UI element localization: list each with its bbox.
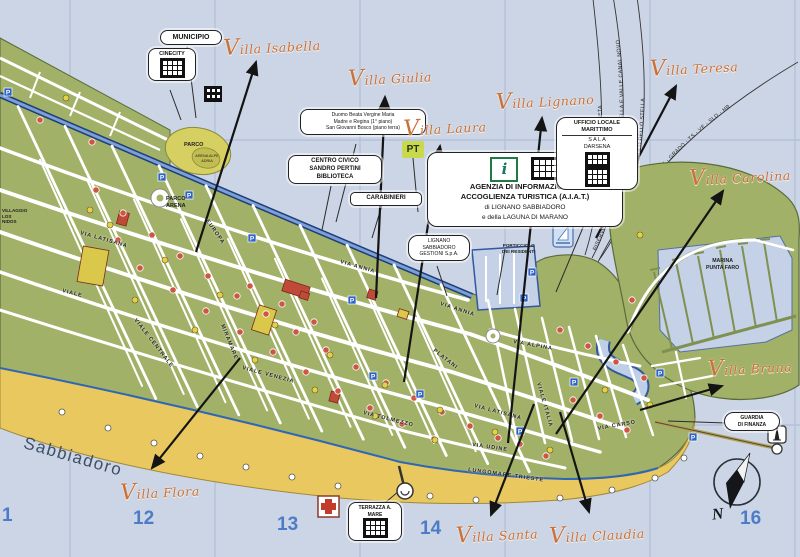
harbor-building-icon xyxy=(585,152,610,167)
poi-marker xyxy=(597,413,603,419)
poi-marker xyxy=(327,352,333,358)
terrazza-building-icon xyxy=(363,518,388,538)
poi-marker xyxy=(570,397,576,403)
poi-marker xyxy=(120,210,126,216)
villaggio-line: NIDOS xyxy=(2,219,17,224)
compass-north-label: N xyxy=(711,505,724,524)
gestioni-line: SABBIADORO xyxy=(422,245,455,251)
beach-marker xyxy=(197,453,203,459)
beach-marker xyxy=(243,464,249,470)
poi-marker xyxy=(263,311,269,317)
agenzia-line: di LIGNANO SABBIADORO xyxy=(485,204,566,211)
beach-marker xyxy=(59,409,65,415)
gestioni-line: LIGNANO xyxy=(428,238,451,244)
villa-label: Villa Claudia xyxy=(549,519,646,549)
poi-marker xyxy=(177,253,183,259)
svg-text:P: P xyxy=(6,89,11,96)
poi-marker xyxy=(237,329,243,335)
poi-marker xyxy=(234,293,240,299)
villaggio-line: LOS xyxy=(2,214,11,219)
svg-text:P: P xyxy=(418,391,423,398)
beach-marker xyxy=(151,440,157,446)
villa-label: Villa Giulia xyxy=(347,62,432,91)
poi-marker xyxy=(272,322,278,328)
poi-marker xyxy=(149,232,155,238)
svg-text:P: P xyxy=(572,379,577,386)
gestioni-line: GESTIONI S.p.A. xyxy=(420,251,459,257)
poi-marker xyxy=(107,222,113,228)
beach-marker xyxy=(427,493,433,499)
poi-marker xyxy=(382,382,388,388)
terrazza-a-mare-callout: TERRAZZA A. MARE xyxy=(348,502,402,541)
svg-text:P: P xyxy=(530,269,535,276)
poi-marker xyxy=(170,287,176,293)
poi-marker xyxy=(492,429,498,435)
beach-marker xyxy=(473,497,479,503)
poi-marker xyxy=(335,388,341,394)
poi-marker xyxy=(353,364,359,370)
poi-marker xyxy=(637,232,643,238)
beach-marker xyxy=(652,475,658,481)
porticciolo-line: PORTICCIOLO xyxy=(503,243,535,248)
parco-arena-line: ARENA xyxy=(166,203,186,209)
municipio-label: MUNICIPIO xyxy=(173,34,210,41)
porticciolo-harbor xyxy=(472,246,540,310)
svg-text:P: P xyxy=(187,192,192,199)
poi-marker xyxy=(217,292,223,298)
post-office-label: PT xyxy=(402,141,424,158)
beach-marker xyxy=(609,487,615,493)
grid-number: 13 xyxy=(277,514,298,536)
centro-line: SANDRO PERTINI xyxy=(309,166,360,172)
villaggio-line: VILLAGGIO xyxy=(2,208,27,213)
first-aid-icon xyxy=(318,496,339,517)
harbor-building-icon xyxy=(585,167,610,187)
villa-label: Villa Carolina xyxy=(689,161,792,191)
villa-label: Villa Laura xyxy=(403,112,487,141)
poi-marker xyxy=(312,387,318,393)
villa-label: Villa Flora xyxy=(120,476,201,505)
centro-line: BIBLIOTECA xyxy=(317,174,354,180)
ufficio-line: MARITTIMO xyxy=(581,127,612,133)
agenzia-line: ACCOGLIENZA TURISTICA (A.I.A.T.) xyxy=(461,192,590,201)
grid-number: 16 xyxy=(740,508,761,530)
poi-marker xyxy=(270,349,276,355)
carabinieri-label: CARABINIERI xyxy=(366,195,405,201)
ufficio-line: UFFICIO LOCALE xyxy=(574,120,620,126)
guardia-line: GUARDIA xyxy=(740,415,763,421)
agenzia-line: e della LAGUNA DI MARANO xyxy=(482,214,568,221)
poi-marker xyxy=(87,207,93,213)
beach-marker xyxy=(681,455,687,461)
pt-text: PT xyxy=(407,144,420,155)
ufficio-line: DARSENA xyxy=(584,144,611,150)
poi-marker xyxy=(547,447,553,453)
poi-marker xyxy=(432,437,438,443)
duomo-line: San Giovanni Bosco (piano terra) xyxy=(326,125,400,131)
porticciolo-line: DEI RESIDENTI xyxy=(502,249,535,254)
poi-marker xyxy=(641,375,647,381)
poi-marker xyxy=(279,301,285,307)
poi-marker xyxy=(162,257,168,263)
poi-marker xyxy=(467,423,473,429)
duomo-line: Duomo Beata Vergine Maria xyxy=(332,112,395,118)
ufficio-marittimo-callout: UFFICIO LOCALE MARITTIMO S A L A DARSENA xyxy=(556,117,638,190)
villa-label: Villa Santa xyxy=(455,519,539,548)
poi-marker xyxy=(252,357,258,363)
building-icon xyxy=(204,86,222,102)
porticciolo-label: PORTICCIOLO DEI RESIDENTI xyxy=(502,243,535,254)
poi-marker xyxy=(192,327,198,333)
parco-text: PARCO xyxy=(184,142,203,148)
beach-marker xyxy=(105,425,111,431)
parco-label: PARCO xyxy=(184,142,203,149)
poi-marker xyxy=(543,453,549,459)
svg-text:P: P xyxy=(350,297,355,304)
parco-arena-label: PARCO ARENA xyxy=(166,196,186,210)
poi-marker xyxy=(495,435,501,441)
svg-text:P: P xyxy=(250,235,255,242)
poi-marker xyxy=(137,265,143,271)
poi-marker xyxy=(624,427,630,433)
poi-marker xyxy=(247,283,253,289)
grid-number: 12 xyxy=(133,508,154,530)
poi-marker xyxy=(205,273,211,279)
north-letter: N xyxy=(711,505,724,523)
cinecity-callout: CINECITY xyxy=(148,48,196,81)
poi-marker xyxy=(132,297,138,303)
villa-label: Villa Teresa xyxy=(649,52,739,82)
poi-marker xyxy=(613,359,619,365)
grid-number: 14 xyxy=(420,518,441,540)
villa-label: Villa Bruna xyxy=(707,352,793,381)
poi-marker xyxy=(63,95,69,101)
cinema-icon xyxy=(160,58,185,78)
poi-marker xyxy=(93,187,99,193)
villaggio-los-nidos-label: VILLAGGIO LOS NIDOS xyxy=(2,208,27,225)
arena-text: ARENA ALPE ADRIA xyxy=(195,154,218,163)
beach-marker xyxy=(557,495,563,501)
poi-marker xyxy=(557,327,563,333)
duomo-line: Madre e Regina (1° piano) xyxy=(334,119,393,125)
centro-line: CENTRO CIVICO xyxy=(311,158,359,164)
map-canvas[interactable]: APRILIA MARITTIMA - LITORANEA VENETARISE… xyxy=(0,0,800,557)
cinecity-label: CINECITY xyxy=(159,51,185,57)
carabinieri-callout: CARABINIERI xyxy=(350,192,422,206)
poi-marker xyxy=(203,308,209,314)
guardia-line: DI FINANZA xyxy=(738,422,766,428)
grid-number: 1 xyxy=(2,505,13,527)
beach-marker xyxy=(335,483,341,489)
svg-text:P: P xyxy=(371,373,376,380)
poi-marker xyxy=(311,319,317,325)
villa-label: Villa Lignano xyxy=(495,85,595,115)
ufficio-line: S A L A xyxy=(588,137,606,143)
info-icon: i xyxy=(490,157,518,182)
arena-alpe-adria-label: ARENA ALPE ADRIA xyxy=(192,154,222,163)
municipio-callout: MUNICIPIO xyxy=(160,30,222,45)
svg-text:P: P xyxy=(658,370,663,377)
marina-line: PUNTA FARO xyxy=(706,265,739,271)
marina-punta-faro-label: MARINA PUNTA FARO xyxy=(706,258,739,271)
villa-label: Villa Isabella xyxy=(223,31,321,61)
poi-marker xyxy=(437,407,443,413)
parco-arena-line: PARCO xyxy=(166,196,185,202)
marina-line: MARINA xyxy=(712,258,733,264)
poi-marker xyxy=(293,329,299,335)
svg-text:P: P xyxy=(160,174,165,181)
terrazza-line: TERRAZZA xyxy=(359,505,386,511)
poi-marker xyxy=(303,369,309,375)
gestioni-callout: LIGNANO SABBIADORO GESTIONI S.p.A. xyxy=(408,235,470,261)
guardia-finanza-callout: GUARDIA DI FINANZA xyxy=(724,412,780,431)
beach-marker xyxy=(289,474,295,480)
poi-marker xyxy=(585,343,591,349)
poi-marker xyxy=(602,387,608,393)
poi-marker xyxy=(89,139,95,145)
poi-marker xyxy=(37,117,43,123)
svg-text:P: P xyxy=(691,434,696,441)
centro-civico-callout: CENTRO CIVICO SANDRO PERTINI BIBLIOTECA xyxy=(288,155,382,184)
poi-marker xyxy=(629,297,635,303)
